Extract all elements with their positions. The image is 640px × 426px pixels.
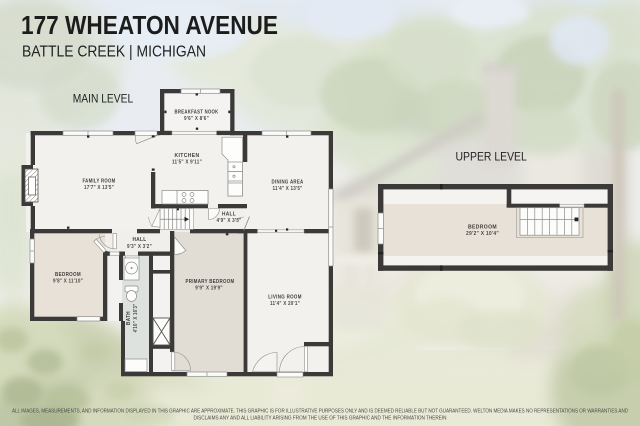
svg-text:4'9" X 3'3": 4'9" X 3'3" <box>217 218 242 224</box>
svg-text:9'6" X 8'6": 9'6" X 8'6" <box>184 116 209 122</box>
svg-text:LIVING ROOM: LIVING ROOM <box>268 295 302 301</box>
svg-text:9'8" X 11'10": 9'8" X 11'10" <box>53 279 83 285</box>
svg-text:ALL IMAGES, MEASUREMENTS, AND: ALL IMAGES, MEASUREMENTS, AND INFORMATIO… <box>12 409 628 415</box>
svg-text:4'10" X 16'3": 4'10" X 16'3" <box>133 303 139 332</box>
svg-text:KITCHEN: KITCHEN <box>175 153 200 159</box>
svg-text:BREAKFAST NOOK: BREAKFAST NOOK <box>175 110 219 116</box>
svg-text:FAMILY ROOM: FAMILY ROOM <box>83 179 116 185</box>
svg-text:9'3" X 3'2": 9'3" X 3'2" <box>127 244 152 250</box>
svg-text:MAIN LEVEL: MAIN LEVEL <box>73 93 134 105</box>
svg-text:DISCLAIMS ANY AND ALL LIABILIT: DISCLAIMS ANY AND ALL LIABILITY ARISING … <box>194 416 447 422</box>
svg-text:17'7" X 13'5": 17'7" X 13'5" <box>84 185 114 191</box>
svg-text:11'4" X 13'5": 11'4" X 13'5" <box>273 186 303 192</box>
svg-text:11'5" X 9'11": 11'5" X 9'11" <box>172 160 202 166</box>
svg-text:BEDROOM: BEDROOM <box>55 272 81 278</box>
svg-text:29'2" X 10'4": 29'2" X 10'4" <box>466 231 499 237</box>
svg-text:BEDROOM: BEDROOM <box>468 224 497 230</box>
svg-text:DINING AREA: DINING AREA <box>272 180 304 186</box>
svg-text:BATTLE CREEK | MICHIGAN: BATTLE CREEK | MICHIGAN <box>22 44 206 61</box>
svg-text:HALL: HALL <box>133 237 147 243</box>
svg-text:UPPER LEVEL: UPPER LEVEL <box>456 151 528 163</box>
svg-text:BATH: BATH <box>126 311 132 325</box>
svg-text:HALL: HALL <box>222 212 236 218</box>
svg-text:9'9" X 19'9": 9'9" X 19'9" <box>195 286 223 292</box>
svg-text:PRIMARY BEDROOM: PRIMARY BEDROOM <box>186 279 235 285</box>
svg-text:11'4" X 20'1": 11'4" X 20'1" <box>270 301 300 307</box>
svg-text:177 WHEATON AVENUE: 177 WHEATON AVENUE <box>21 12 278 40</box>
